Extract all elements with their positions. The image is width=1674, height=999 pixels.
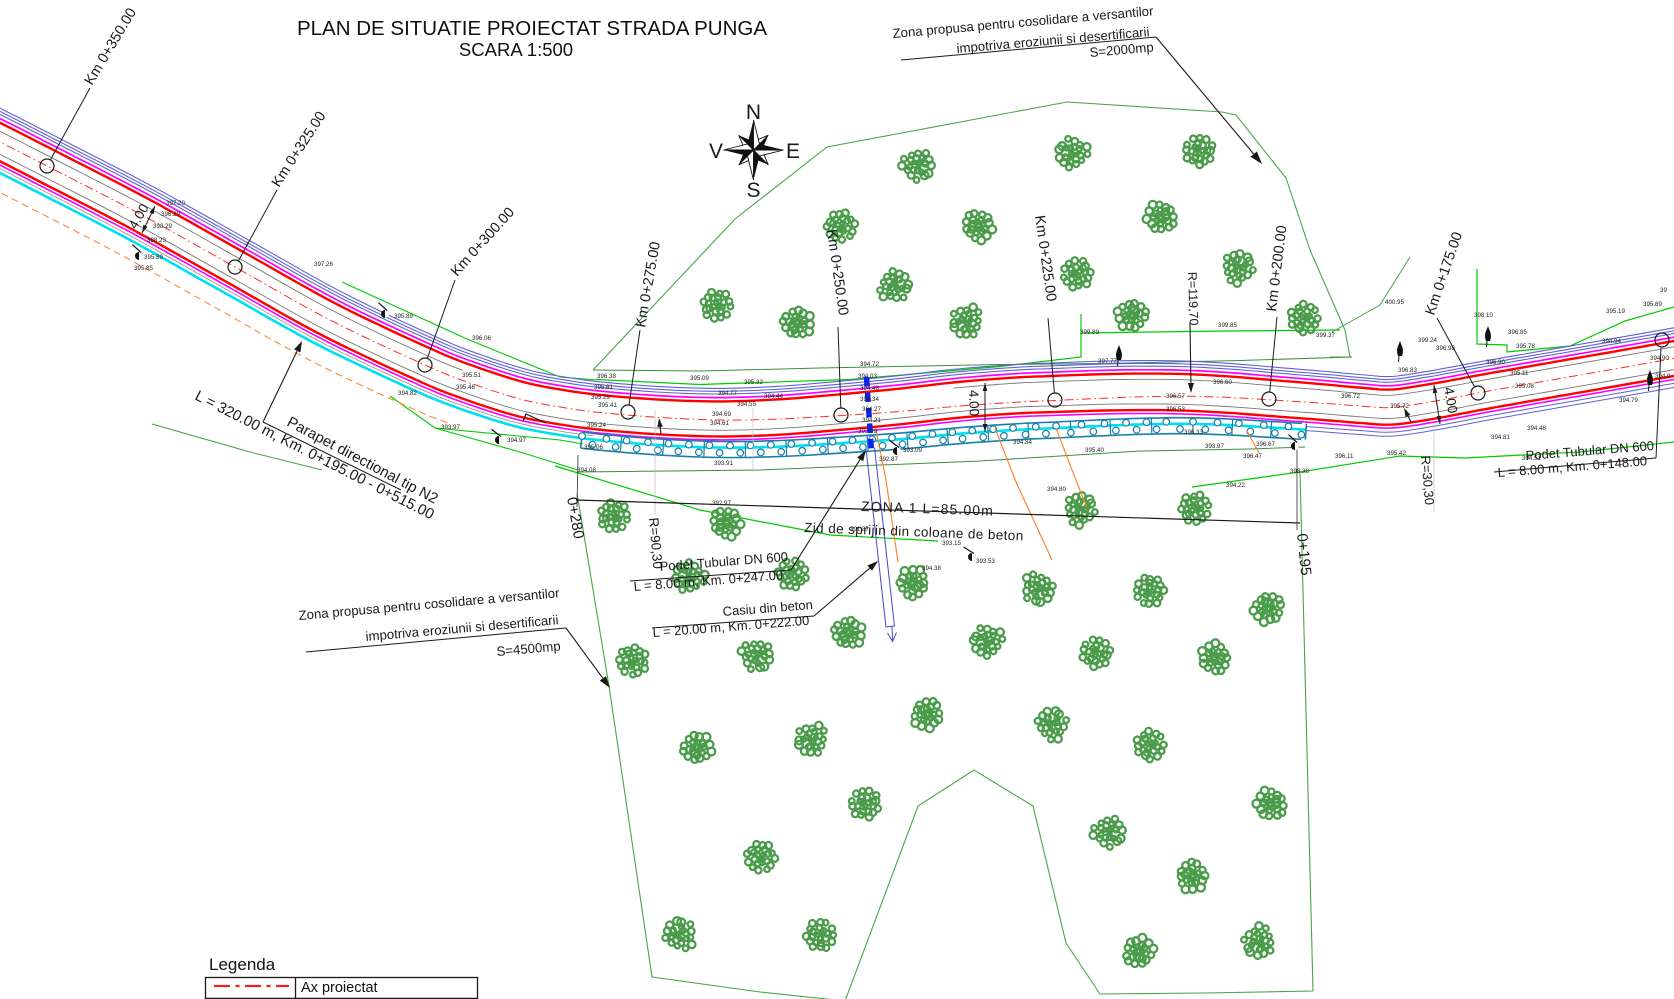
svg-text:395.06: 395.06: [584, 444, 603, 451]
svg-text:399.24: 399.24: [1418, 337, 1437, 344]
svg-text:395.78: 395.78: [1516, 343, 1535, 350]
svg-text:395.41: 395.41: [598, 402, 617, 409]
svg-text:395.29: 395.29: [591, 394, 610, 401]
svg-text:396.72: 396.72: [1341, 393, 1360, 400]
svg-text:4.00: 4.00: [966, 390, 982, 417]
svg-text:393.91: 393.91: [714, 460, 733, 467]
svg-text:395.51: 395.51: [462, 372, 481, 379]
svg-text:398.38: 398.38: [1290, 468, 1309, 475]
svg-text:393.97: 393.97: [1205, 443, 1224, 450]
svg-text:394.77: 394.77: [718, 390, 737, 397]
svg-text:392.97: 392.97: [712, 500, 731, 507]
svg-text:394.9: 394.9: [1655, 373, 1671, 380]
svg-text:396.67: 396.67: [1256, 441, 1275, 448]
svg-text:399.89: 399.89: [1080, 329, 1099, 336]
svg-text:S: S: [746, 179, 760, 202]
svg-text:R=119,70: R=119,70: [1185, 272, 1201, 326]
svg-text:396.90: 396.90: [1486, 359, 1505, 366]
svg-text:398.23: 398.23: [147, 237, 166, 244]
svg-text:Legenda: Legenda: [209, 955, 276, 974]
svg-text:395.40: 395.40: [1085, 447, 1104, 454]
svg-text:397.20: 397.20: [166, 200, 185, 207]
svg-text:394.80: 394.80: [1047, 486, 1066, 493]
svg-text:395.89: 395.89: [394, 313, 413, 320]
svg-text:394.48: 394.48: [1527, 425, 1546, 432]
svg-text:396.57: 396.57: [1166, 393, 1185, 400]
svg-text:395.89: 395.89: [1643, 301, 1662, 308]
svg-text:396.06: 396.06: [472, 335, 491, 342]
svg-text:395.85: 395.85: [134, 265, 153, 272]
svg-text:394.51: 394.51: [1522, 455, 1541, 462]
svg-text:394.34: 394.34: [860, 396, 879, 403]
svg-text:395.09: 395.09: [690, 375, 709, 382]
svg-text:396.11: 396.11: [1335, 453, 1354, 460]
svg-text:394.03: 394.03: [858, 373, 877, 380]
svg-text:394.48: 394.48: [860, 385, 879, 392]
svg-text:396.85: 396.85: [1508, 329, 1527, 336]
svg-text:393.15: 393.15: [942, 540, 961, 547]
svg-text:392.87: 392.87: [879, 456, 898, 463]
svg-text:396.29: 396.29: [161, 211, 180, 218]
svg-text:396.83: 396.83: [1398, 367, 1417, 374]
svg-text:395.42: 395.42: [1387, 450, 1406, 457]
svg-text:393.53: 393.53: [976, 558, 995, 565]
svg-text:39: 39: [1660, 287, 1667, 294]
svg-text:394.72: 394.72: [860, 361, 879, 368]
svg-text:395.72: 395.72: [1390, 403, 1409, 410]
svg-text:N: N: [746, 101, 761, 124]
svg-text:394.69: 394.69: [712, 411, 731, 418]
svg-text:394.90: 394.90: [1650, 355, 1669, 362]
svg-text:391.87: 391.87: [850, 526, 869, 533]
svg-text:400.95: 400.95: [1385, 299, 1404, 306]
svg-text:396.33: 396.33: [1184, 429, 1203, 436]
svg-text:396.38: 396.38: [597, 373, 616, 380]
svg-text:394.08: 394.08: [577, 467, 596, 474]
svg-text:394.94: 394.94: [1602, 338, 1621, 345]
svg-text:396.60: 396.60: [1213, 379, 1232, 386]
svg-text:Ax proiectat: Ax proiectat: [301, 980, 378, 996]
svg-text:396.53: 396.53: [1166, 406, 1185, 413]
svg-text:395.19: 395.19: [1606, 308, 1625, 315]
svg-text:394.55: 394.55: [737, 401, 756, 408]
svg-text:394.21: 394.21: [862, 417, 881, 424]
svg-text:E: E: [786, 140, 800, 163]
svg-text:396.47: 396.47: [1243, 453, 1262, 460]
svg-text:394.38: 394.38: [922, 565, 941, 572]
svg-text:394.61: 394.61: [710, 420, 729, 427]
svg-text:394.22: 394.22: [1226, 482, 1245, 489]
svg-text:394.79: 394.79: [1619, 397, 1638, 404]
svg-text:394.81: 394.81: [1491, 434, 1510, 441]
svg-text:399.85: 399.85: [1218, 322, 1237, 329]
svg-text:397.77: 397.77: [1098, 358, 1117, 365]
svg-text:398.10: 398.10: [1474, 312, 1493, 319]
svg-text:398.29: 398.29: [153, 223, 172, 230]
svg-text:395.89: 395.89: [144, 254, 163, 261]
svg-text:PLAN DE SITUATIE PROIECTAT STR: PLAN DE SITUATIE PROIECTAT STRADA PUNGA: [297, 17, 767, 40]
svg-text:393.99: 393.99: [858, 428, 877, 435]
svg-text:395.32: 395.32: [744, 379, 763, 386]
svg-text:394.27: 394.27: [862, 406, 881, 413]
svg-text:393.09: 393.09: [903, 447, 922, 454]
svg-text:397.26: 397.26: [314, 261, 333, 268]
svg-text:395.08: 395.08: [1515, 383, 1534, 390]
svg-text:394.97: 394.97: [507, 437, 526, 444]
svg-text:395.46: 395.46: [456, 384, 475, 391]
svg-text:396.98: 396.98: [1436, 345, 1455, 352]
svg-text:393.97: 393.97: [441, 424, 460, 431]
svg-text:V: V: [709, 140, 723, 163]
svg-text:399.37: 399.37: [1316, 332, 1335, 339]
svg-text:394.44: 394.44: [764, 393, 783, 400]
svg-text:SCARA 1:500: SCARA 1:500: [459, 39, 573, 60]
svg-text:395.24: 395.24: [587, 422, 606, 429]
svg-text:394.84: 394.84: [1013, 439, 1032, 446]
svg-text:395.81: 395.81: [594, 384, 613, 391]
svg-text:395.11: 395.11: [1510, 370, 1529, 377]
svg-text:394.82: 394.82: [398, 390, 417, 397]
